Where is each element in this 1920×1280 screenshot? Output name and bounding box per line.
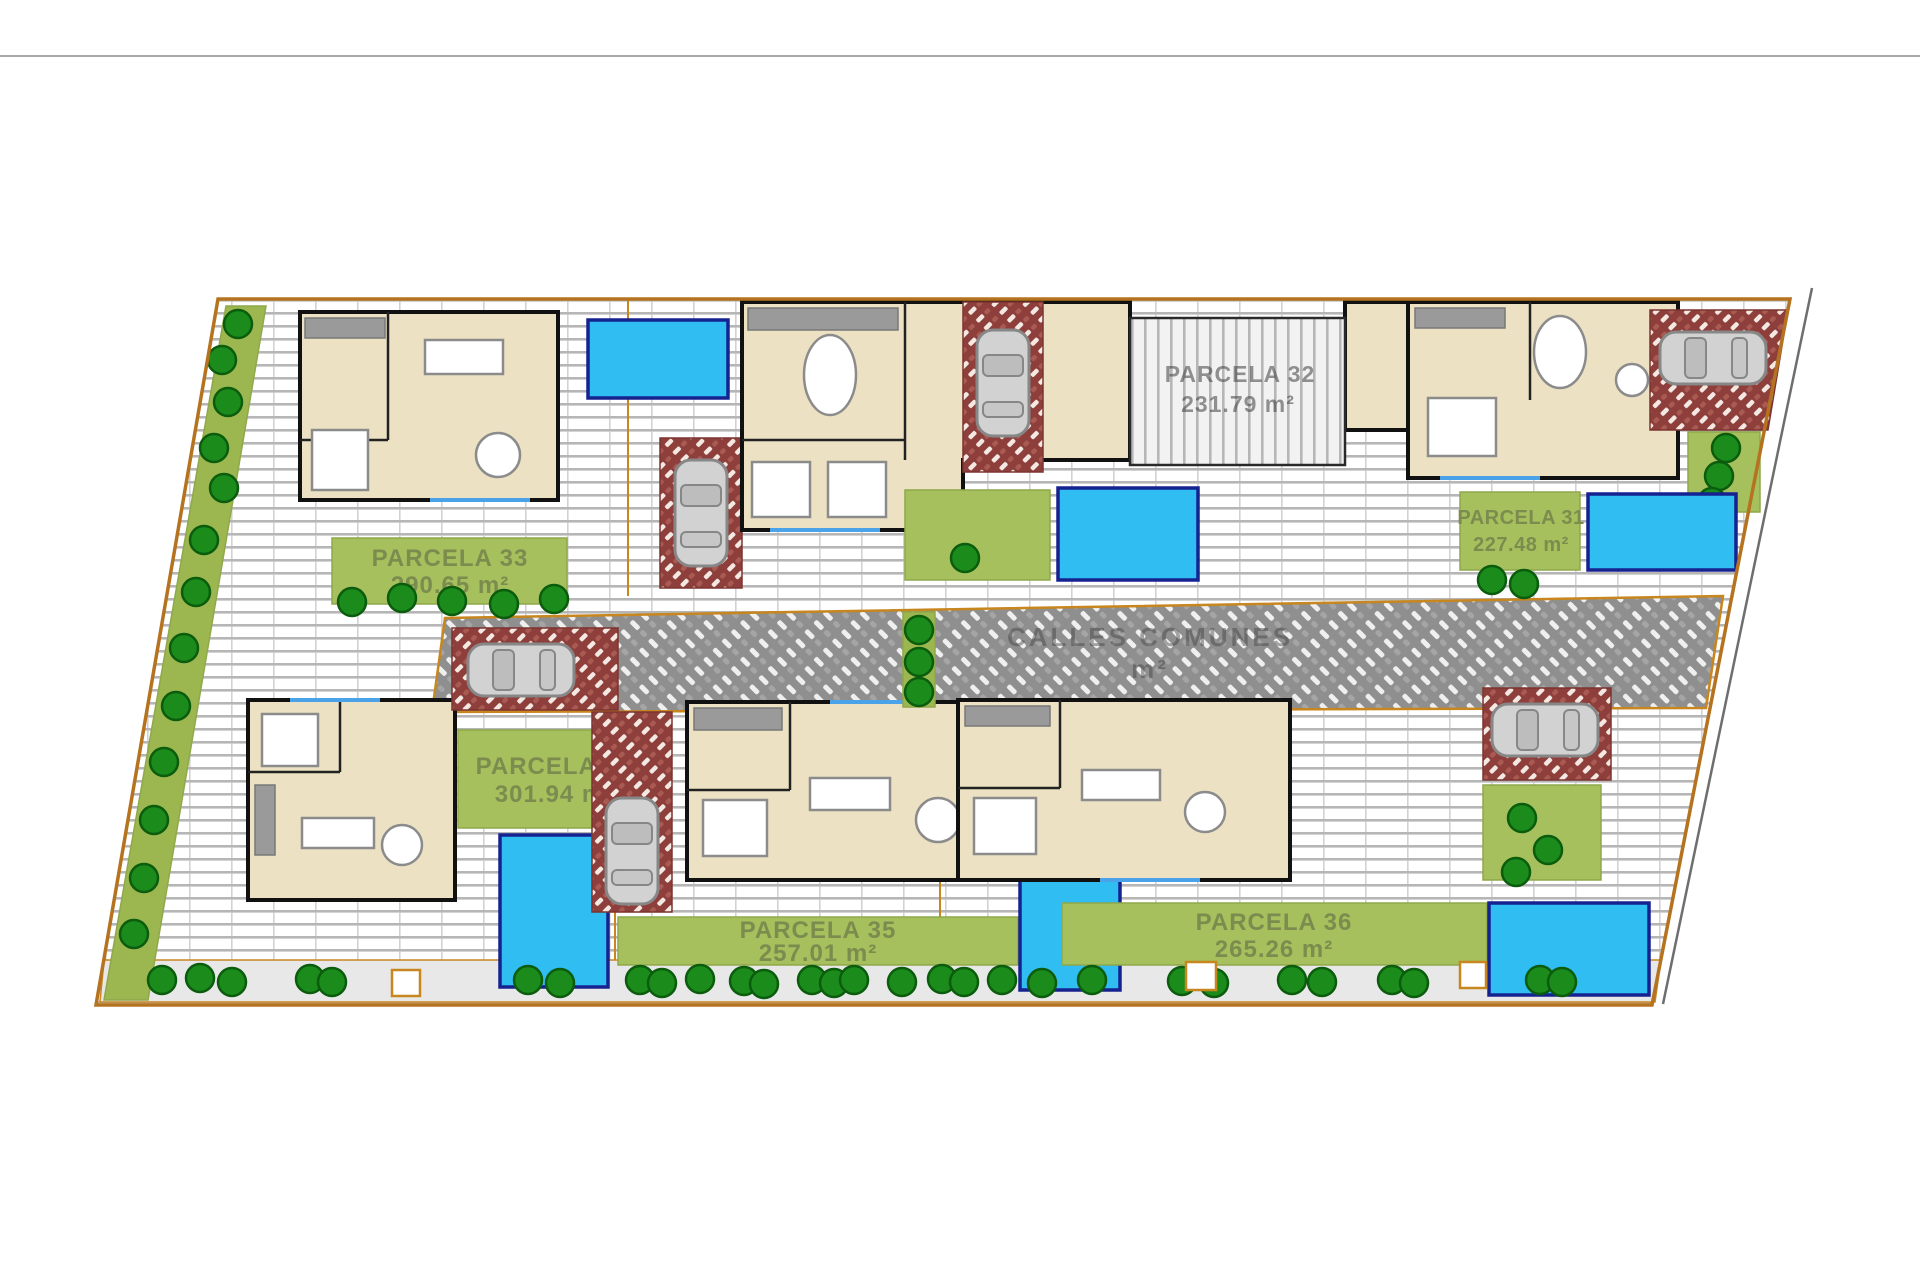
parcela-36-name: PARCELA 36 bbox=[1196, 909, 1353, 936]
bed bbox=[828, 462, 886, 517]
site-plan-page: CALLES COMUNES m² PARCELA 33 290.65 m² bbox=[0, 0, 1920, 1280]
car-34 bbox=[468, 644, 574, 696]
tree bbox=[1705, 462, 1733, 490]
kitchen-counter bbox=[255, 785, 275, 855]
kitchen-counter bbox=[305, 318, 385, 338]
tree bbox=[1712, 434, 1740, 462]
pool-31 bbox=[1588, 494, 1736, 570]
bed bbox=[703, 800, 767, 856]
parcela-36-area: 265.26 m² bbox=[1215, 936, 1333, 963]
bed bbox=[1428, 398, 1496, 456]
car-31 bbox=[1660, 332, 1766, 384]
chair bbox=[1616, 364, 1648, 396]
street-label: CALLES COMUNES bbox=[1007, 622, 1293, 652]
parcela-36-label-plate: PARCELA 36 265.26 m² bbox=[1062, 903, 1487, 965]
car-32 bbox=[977, 330, 1029, 436]
site-plan-drawing: CALLES COMUNES m² PARCELA 33 290.65 m² bbox=[0, 0, 1920, 1280]
pool-32 bbox=[1058, 488, 1198, 580]
car-36 bbox=[1492, 704, 1598, 756]
tree bbox=[905, 678, 933, 706]
tree bbox=[951, 544, 979, 572]
tree bbox=[905, 648, 933, 676]
parcela-33: PARCELA 33 290.65 m² bbox=[300, 312, 742, 604]
garden-36 bbox=[1483, 785, 1601, 880]
tree bbox=[1534, 836, 1562, 864]
villa-34-floorplan bbox=[248, 700, 455, 900]
dining-table bbox=[382, 825, 422, 865]
bed bbox=[974, 798, 1036, 854]
kitchen-counter bbox=[694, 708, 782, 730]
dining-table bbox=[476, 433, 520, 477]
sofa bbox=[425, 340, 503, 374]
villa-31-floorplan bbox=[1408, 302, 1678, 478]
tree bbox=[905, 616, 933, 644]
parcela-35-label-plate: PARCELA 35 257.01 m² bbox=[618, 917, 1018, 967]
bed bbox=[752, 462, 810, 517]
pool-33 bbox=[588, 320, 728, 398]
parcela-32-name: PARCELA 32 bbox=[1165, 361, 1316, 387]
parcela-31-area: 227.48 m² bbox=[1473, 534, 1569, 556]
bed bbox=[262, 714, 318, 766]
parcela-31-name: PARCELA 31 bbox=[1457, 507, 1584, 529]
sofa bbox=[1082, 770, 1160, 800]
car-35 bbox=[606, 798, 658, 904]
villa-36-floorplan bbox=[958, 700, 1290, 880]
tree bbox=[1508, 804, 1536, 832]
dining-table bbox=[1185, 792, 1225, 832]
dining-table bbox=[916, 798, 960, 842]
villa-33-floorplan bbox=[300, 312, 558, 500]
bed bbox=[312, 430, 368, 490]
parcela-32-area: 231.79 m² bbox=[1181, 391, 1295, 417]
tree bbox=[1510, 570, 1538, 598]
parcela-35-area: 257.01 m² bbox=[759, 940, 877, 967]
kitchen-counter bbox=[965, 706, 1050, 726]
sofa bbox=[810, 778, 890, 810]
car-33 bbox=[675, 460, 727, 566]
street-area-unit: m² bbox=[1131, 654, 1169, 684]
parcela-31: PARCELA 31 227.48 m² bbox=[1408, 302, 1788, 598]
sofa bbox=[302, 818, 374, 848]
dining-table bbox=[804, 335, 856, 415]
parcela-31-label-plate: PARCELA 31 227.48 m² bbox=[1457, 492, 1584, 570]
kitchen-counter bbox=[748, 308, 898, 330]
kitchen-counter bbox=[1415, 308, 1505, 328]
dining-table bbox=[1534, 316, 1586, 388]
bath-wing bbox=[1345, 302, 1408, 430]
tree bbox=[1478, 566, 1506, 594]
tree bbox=[1502, 858, 1530, 886]
parcela-33-name: PARCELA 33 bbox=[372, 545, 529, 572]
